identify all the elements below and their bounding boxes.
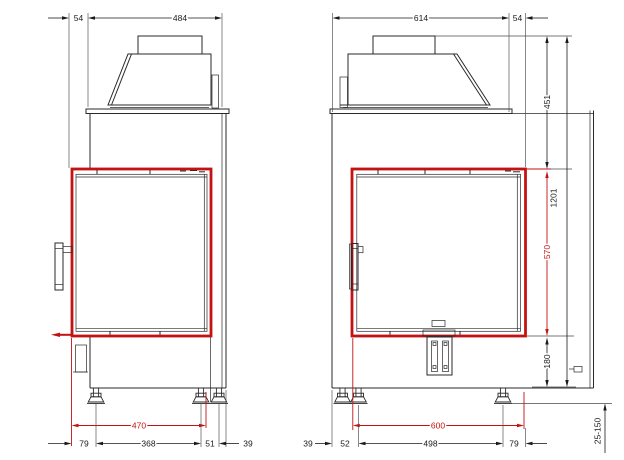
flue-collar <box>138 36 202 54</box>
flue-collar <box>373 36 435 54</box>
dim-rear-edge: 39 <box>243 439 253 449</box>
dim-foot-range: 25-150 <box>593 417 603 444</box>
side-view <box>51 36 229 403</box>
door-handle-front <box>350 244 364 291</box>
dim-hood-height: 451 <box>542 95 552 109</box>
dim-frame-overhang: 54 <box>513 13 523 23</box>
dim-glass-height: 570 <box>542 245 552 259</box>
door-handle-side <box>55 243 72 290</box>
dim-left-edge: 39 <box>303 439 313 449</box>
adjustable-foot <box>334 388 352 403</box>
dim-front-width: 614 <box>414 13 428 23</box>
technical-drawing-page: 54 484 470 79 368 51 39 <box>0 0 624 460</box>
dim-feet-span: 498 <box>423 439 437 449</box>
fireplace-dimension-drawing: 54 484 470 79 368 51 39 <box>0 0 624 460</box>
dim-right-to-frame: 79 <box>509 439 519 449</box>
dim-front-foot: 79 <box>79 439 89 449</box>
dim-base-height: 180 <box>542 354 552 368</box>
dim-glass-depth: 470 <box>132 421 146 431</box>
body-shell <box>330 109 594 388</box>
dim-side-depth: 484 <box>173 13 187 23</box>
adjustable-foot <box>210 388 228 403</box>
front-view <box>330 36 594 403</box>
body-shell <box>73 109 229 402</box>
dim-left-feet-gap: 52 <box>340 439 350 449</box>
adjustable-foot <box>350 388 368 403</box>
dim-rear-feet-gap: 51 <box>205 439 215 449</box>
door-inner-frame <box>357 170 521 335</box>
adjustable-foot <box>494 388 512 403</box>
adjustable-foot <box>192 388 210 403</box>
red-left-arrow <box>51 333 60 337</box>
front-view-dimensions: 614 54 451 570 180 1201 25-150 <box>303 13 612 453</box>
dim-feet-span: 368 <box>141 439 155 449</box>
hood <box>108 54 219 108</box>
door-inner-frame <box>76 170 207 335</box>
glass-frame-highlight <box>51 169 211 337</box>
dim-total-height: 1201 <box>549 188 559 207</box>
hood <box>340 54 490 108</box>
dim-side-offset: 54 <box>74 13 84 23</box>
glass-frame-highlight <box>352 169 526 336</box>
adjustable-foot <box>87 388 105 403</box>
dim-glass-width: 600 <box>431 421 445 431</box>
